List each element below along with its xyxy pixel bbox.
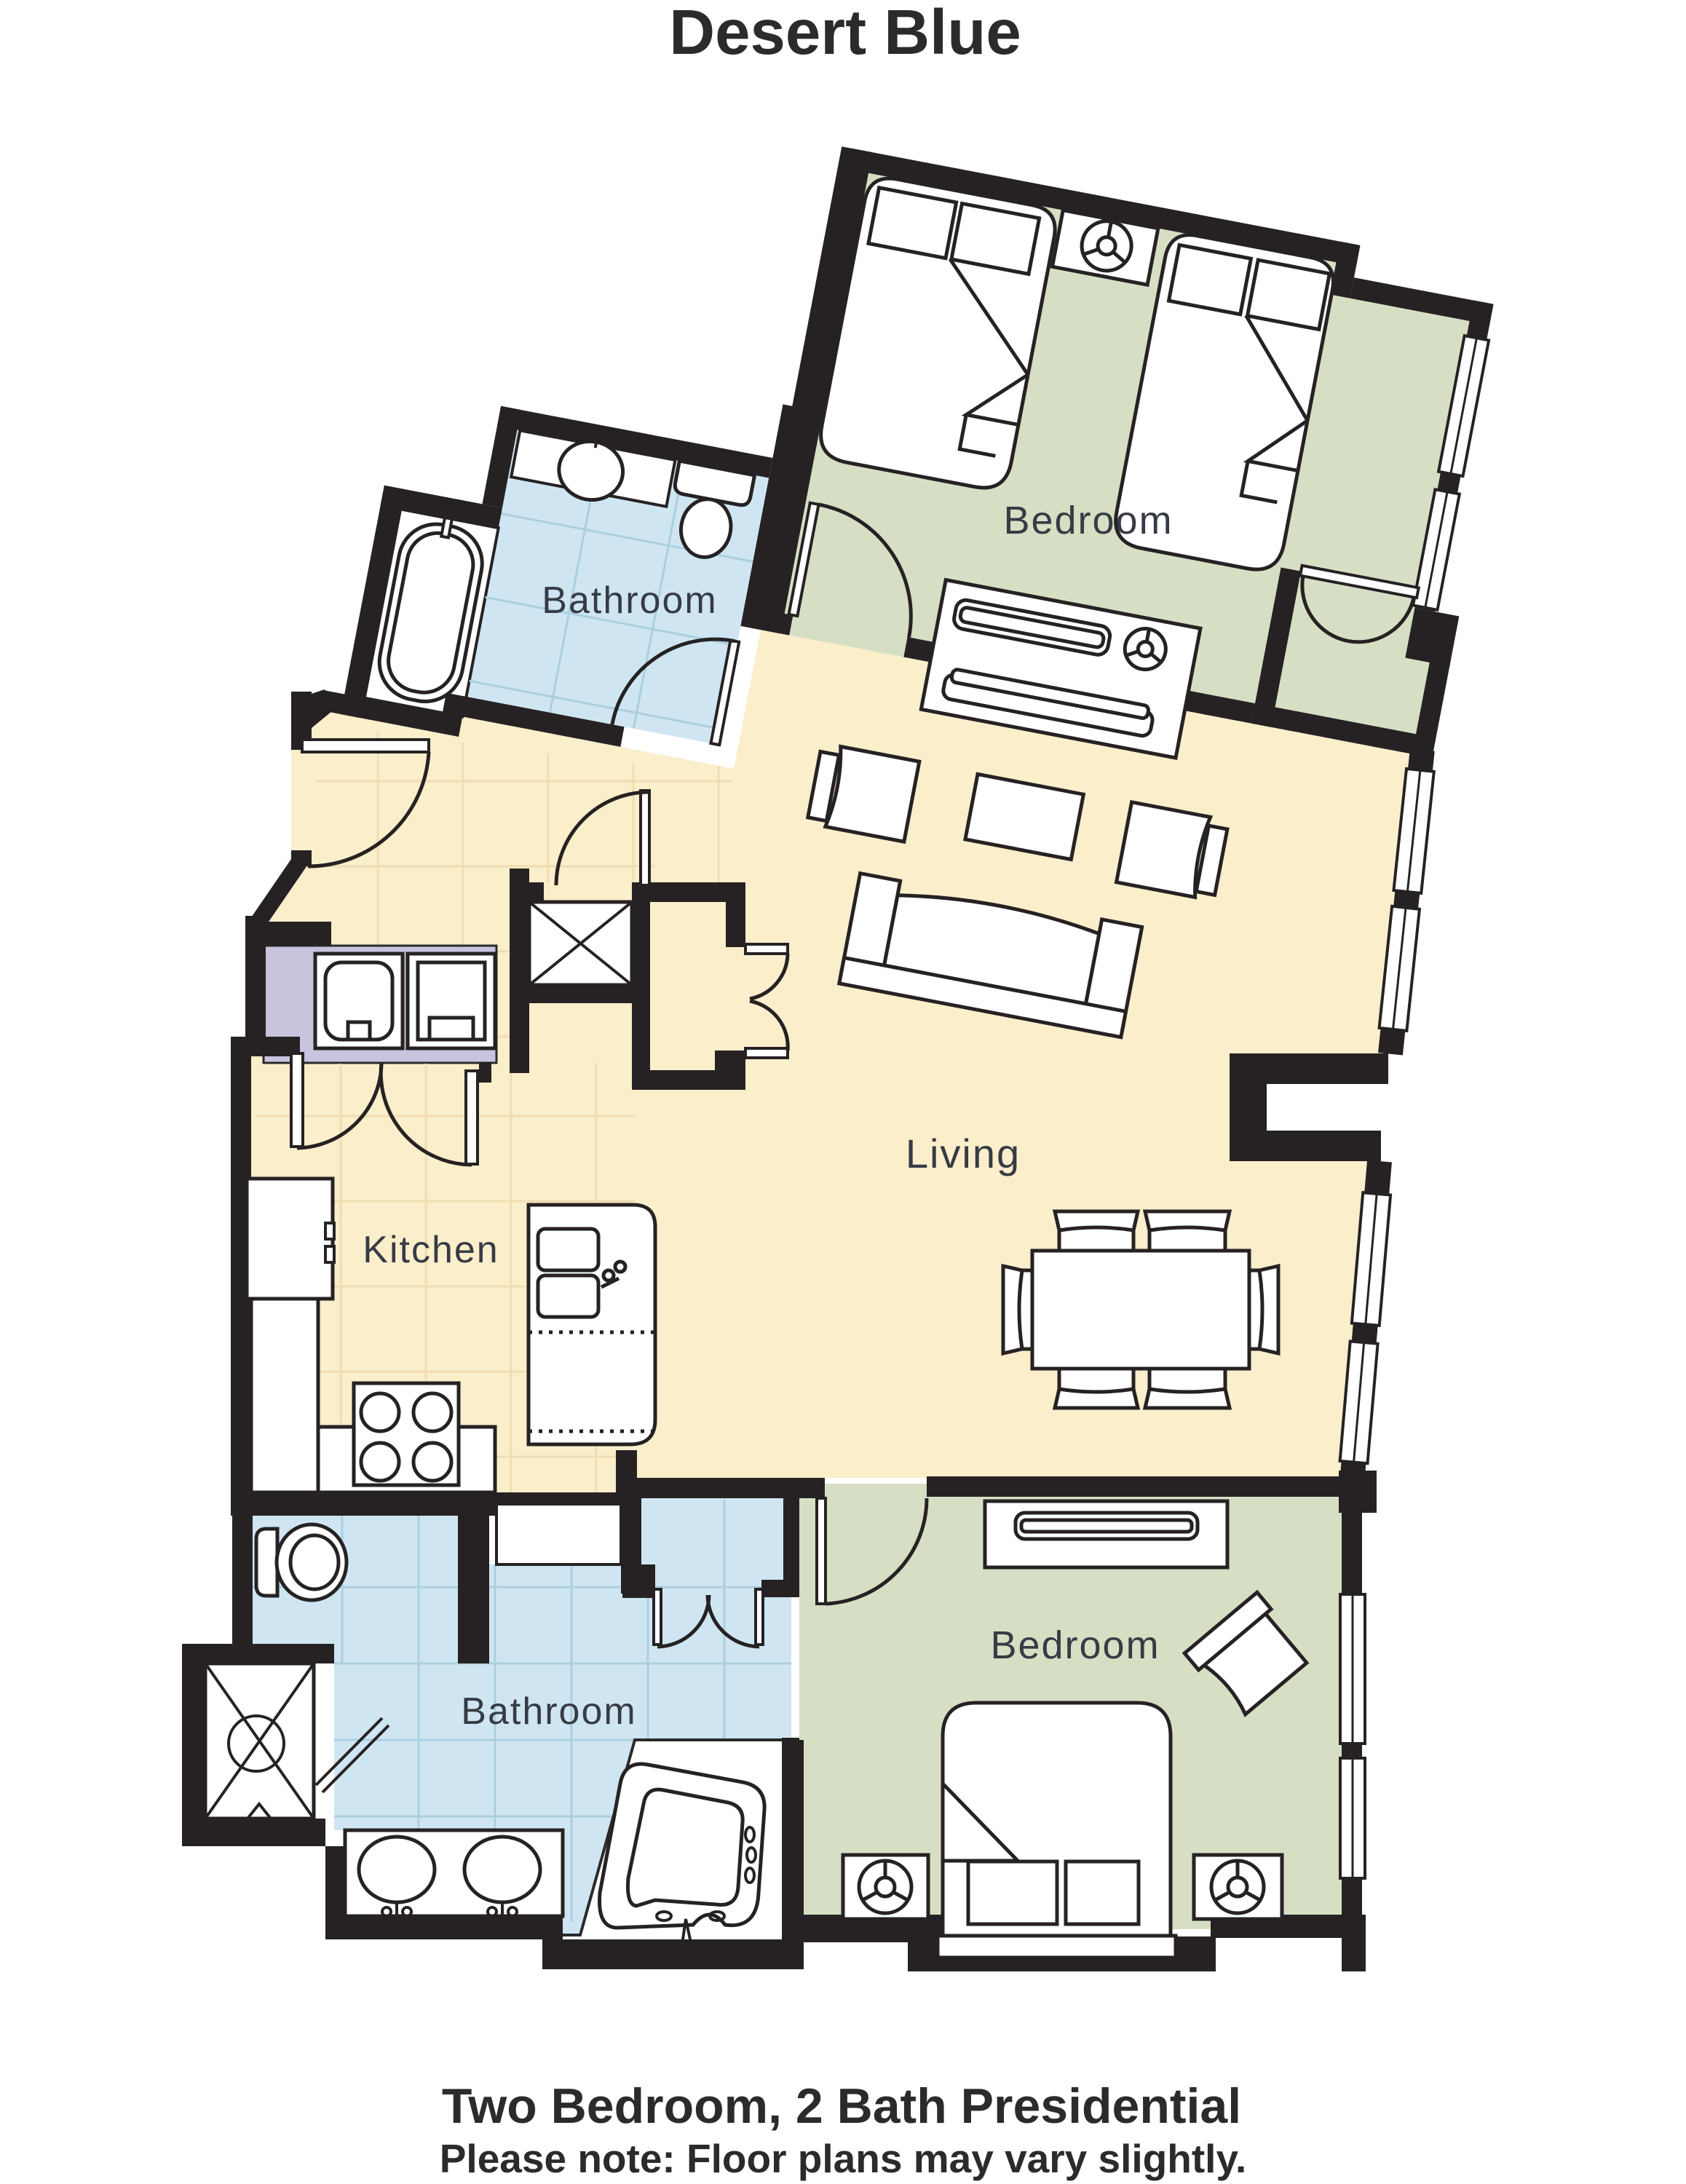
svg-text:Desert Blue: Desert Blue xyxy=(669,0,1021,68)
svg-text:Living: Living xyxy=(906,1131,1021,1176)
svg-text:Bedroom: Bedroom xyxy=(990,1623,1160,1667)
svg-text:Bedroom: Bedroom xyxy=(1003,499,1173,542)
svg-text:Bathroom: Bathroom xyxy=(461,1690,636,1733)
svg-text:Two Bedroom, 2 Bath Presidenti: Two Bedroom, 2 Bath Presidential xyxy=(442,2078,1241,2134)
svg-text:Please note: Floor plans may v: Please note: Floor plans may vary slight… xyxy=(440,2136,1247,2181)
svg-text:Bathroom: Bathroom xyxy=(542,579,717,622)
svg-text:Kitchen: Kitchen xyxy=(363,1229,499,1271)
